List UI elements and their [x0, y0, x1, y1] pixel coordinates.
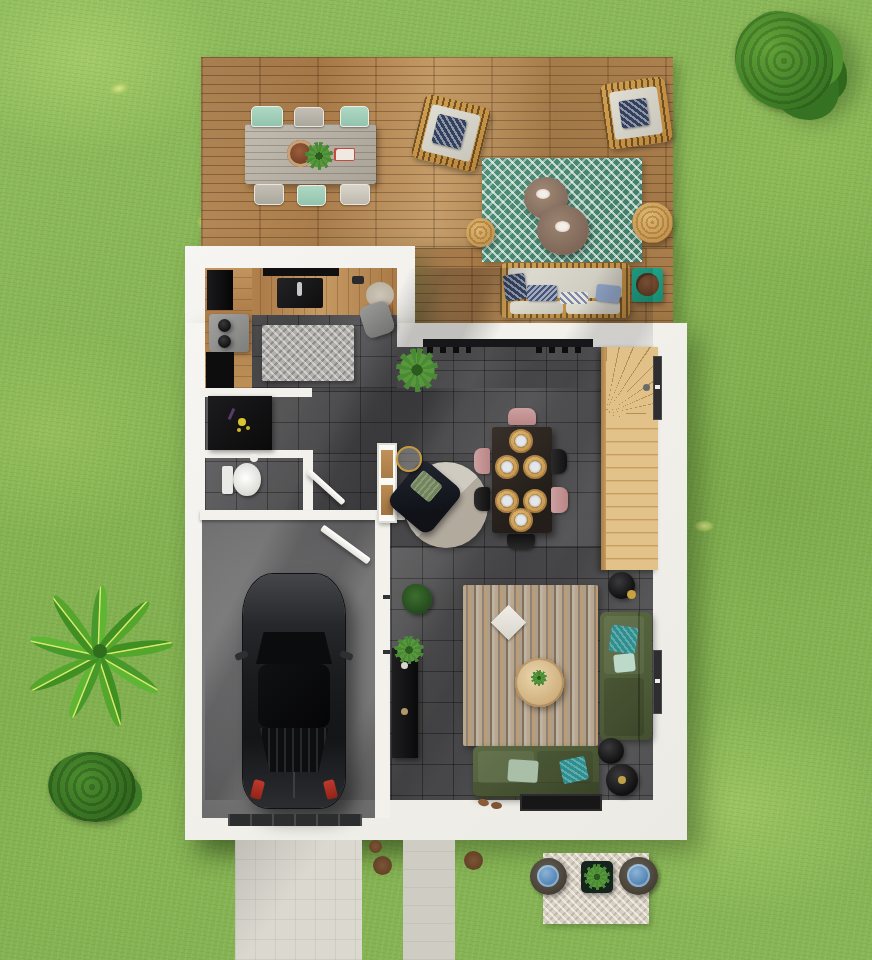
flower-plate: [555, 221, 570, 232]
door-handle: [643, 384, 650, 391]
side-table-black: [606, 764, 638, 796]
outdoor-chair: [254, 184, 284, 205]
navy-zigzag-pillow: [618, 97, 650, 129]
gold-side-table: [396, 446, 422, 472]
dining-chair-black: [507, 534, 535, 550]
outdoor-chair: [251, 106, 283, 127]
dirt-spot: [369, 840, 382, 853]
plate: [501, 461, 513, 473]
fridge: [207, 270, 233, 310]
grass-tuft: [694, 520, 714, 532]
palm-center: [93, 644, 107, 658]
desk-items: [352, 276, 364, 284]
door-frame-mark: [383, 595, 390, 599]
outdoor-sofa: [500, 263, 630, 318]
entry-door-frame: [653, 356, 662, 420]
jute-pouf: [632, 202, 673, 243]
garden-chair: [619, 857, 658, 895]
indoor-plant: [396, 348, 438, 392]
navy-pillow: [502, 273, 527, 302]
sage-pillow: [507, 759, 538, 783]
outdoor-chair: [297, 185, 326, 206]
window-pane-gap: [655, 679, 660, 683]
pot: [218, 335, 231, 348]
car-windshield: [256, 632, 332, 664]
kitchen-appliance: [209, 314, 249, 352]
sofa-cushion: [604, 678, 644, 736]
dining-chair-black: [474, 487, 490, 511]
garage-door: [228, 814, 362, 826]
entry-sideboard: [208, 396, 272, 450]
flower-plate: [536, 189, 550, 199]
toilet-tank: [222, 466, 233, 494]
placemat: [523, 455, 547, 479]
purple-sprig: [228, 408, 236, 420]
black-planter: [581, 861, 613, 893]
jute-pouf: [466, 218, 495, 247]
plate: [501, 495, 513, 507]
garden-path: [403, 840, 455, 960]
car: [243, 574, 345, 808]
sliding-door-rollers: [536, 347, 588, 353]
gold-decor: [618, 776, 626, 784]
dining-chair-pink: [551, 487, 568, 513]
stairs-railing: [601, 347, 606, 570]
mint-pillow: [613, 653, 636, 673]
plate: [529, 461, 541, 473]
stairs-winder: [601, 347, 658, 417]
placemat: [509, 508, 533, 532]
serving-tray: [334, 148, 355, 161]
candle: [401, 708, 408, 715]
kitchen-mat: [262, 325, 354, 381]
pot: [218, 319, 231, 332]
dining-table: [492, 427, 552, 533]
potted-plant: [402, 584, 432, 614]
car-roof: [258, 664, 330, 728]
plate: [515, 435, 527, 447]
planter-greenery: [584, 864, 610, 890]
placemat: [509, 429, 533, 453]
outdoor-chair: [340, 106, 369, 127]
navy-pillow: [527, 285, 557, 301]
car-rear-window: [260, 728, 328, 772]
outdoor-chair: [340, 184, 370, 205]
kitchen-low-cabinet: [206, 352, 234, 390]
round-coffee-table: [537, 205, 589, 255]
kitchen-sink: [277, 278, 323, 308]
palm-plant: [25, 572, 185, 752]
wall-garage-living: [375, 520, 390, 818]
floor-mid-strip: [205, 388, 653, 450]
wicker-lounge-chair: [599, 76, 674, 151]
fern-plant: [394, 636, 424, 664]
door-frame-mark: [383, 650, 390, 654]
plate: [515, 514, 527, 526]
placemat: [495, 455, 519, 479]
doormat: [520, 794, 602, 811]
entry-console: [377, 443, 397, 523]
tv-unit: [392, 648, 418, 758]
teal-side-table: [632, 268, 663, 302]
car-trunk-line: [293, 772, 295, 798]
side-table-black: [598, 738, 624, 764]
plate: [529, 495, 541, 507]
toilet-bowl: [233, 463, 261, 496]
zigzag-pillow: [560, 292, 588, 304]
floor-plan-render: [0, 0, 872, 960]
outdoor-chair: [294, 107, 324, 127]
dining-chair-black: [551, 449, 567, 474]
sofa-bottom: [473, 746, 599, 798]
dirt-spot: [464, 851, 483, 870]
console-shelf: [381, 450, 393, 478]
sage-pillow: [409, 469, 443, 503]
door-pane-gap: [655, 385, 660, 389]
dining-chair-pink: [474, 448, 490, 474]
toilet-paper-roll: [250, 454, 258, 462]
dining-chair-pink: [508, 408, 536, 425]
cooktop: [263, 268, 339, 276]
sliding-door-track: [423, 339, 593, 347]
coffee-table: [515, 658, 564, 707]
blue-pillow: [627, 864, 650, 887]
yellow-flowers: [238, 418, 246, 426]
sofa-seat-cushion: [510, 301, 563, 314]
dirt-spot: [373, 856, 392, 875]
window-frame: [653, 650, 662, 714]
sofa-chaise: [600, 612, 652, 740]
round-tray: [636, 273, 659, 296]
blue-pillow: [537, 865, 559, 887]
wall-garage-top: [200, 510, 405, 520]
stairs-straight: [601, 417, 658, 570]
coffee-table-plant: [531, 670, 547, 686]
garden-chair: [530, 858, 567, 895]
driveway: [235, 840, 362, 960]
teal-pillow: [608, 624, 638, 654]
lamp-gold-detail: [627, 590, 636, 599]
table-plant: [305, 142, 333, 170]
staircase: [601, 347, 658, 570]
sliding-door-rollers: [427, 347, 471, 353]
faucet: [297, 282, 302, 296]
light-blue-pillow: [595, 284, 621, 303]
